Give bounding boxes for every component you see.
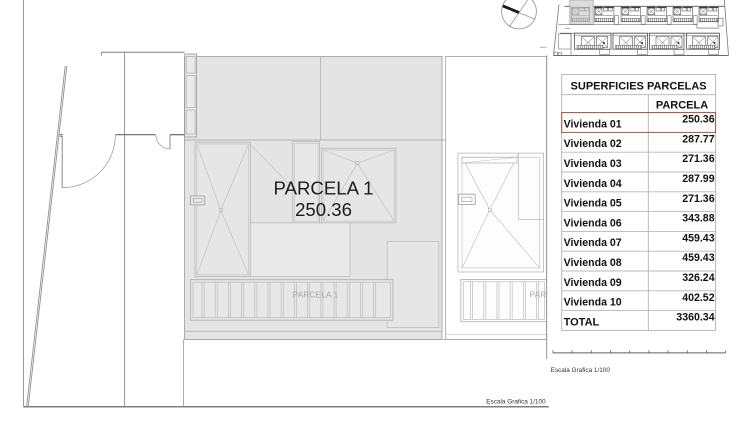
svg-text:343.88: 343.88 [682, 213, 715, 225]
svg-text:Vivienda 05: Vivienda 05 [564, 198, 622, 210]
svg-text:PARCELA: PARCELA [656, 99, 708, 111]
svg-text:Vivienda 03: Vivienda 03 [564, 158, 622, 170]
svg-text:SUPERFICIES PARCELAS: SUPERFICIES PARCELAS [571, 80, 707, 92]
svg-text:287.77: 287.77 [682, 133, 715, 145]
svg-text:250.36: 250.36 [682, 114, 715, 126]
svg-text:Vivienda 04: Vivienda 04 [564, 178, 622, 190]
svg-text:Vivienda 09: Vivienda 09 [564, 277, 622, 289]
svg-text:402.52: 402.52 [682, 292, 715, 304]
svg-text:PARCELA 1: PARCELA 1 [293, 291, 339, 300]
svg-text:Vivienda 10: Vivienda 10 [564, 297, 622, 309]
svg-text:287.99: 287.99 [682, 173, 715, 185]
svg-text:3360.34: 3360.34 [676, 312, 714, 324]
svg-text:Vivienda 01: Vivienda 01 [564, 118, 622, 130]
svg-text:250.36: 250.36 [295, 199, 352, 220]
svg-text:TOTAL: TOTAL [564, 316, 600, 328]
svg-text:Escala Grafica 1/100: Escala Grafica 1/100 [486, 399, 546, 406]
svg-text:459.43: 459.43 [682, 232, 715, 244]
svg-text:Vivienda 07: Vivienda 07 [564, 237, 622, 249]
svg-text:459.43: 459.43 [682, 252, 715, 264]
svg-text:Vivienda 02: Vivienda 02 [564, 138, 622, 150]
svg-text:Escala Grafica 1/100: Escala Grafica 1/100 [551, 367, 611, 374]
svg-text:326.24: 326.24 [682, 272, 715, 284]
svg-text:Vivienda 08: Vivienda 08 [564, 257, 622, 269]
svg-text:271.36: 271.36 [682, 153, 715, 165]
svg-text:Vivienda 06: Vivienda 06 [564, 217, 622, 229]
svg-text:PARCELA 1: PARCELA 1 [274, 178, 374, 199]
svg-text:271.36: 271.36 [682, 193, 715, 205]
